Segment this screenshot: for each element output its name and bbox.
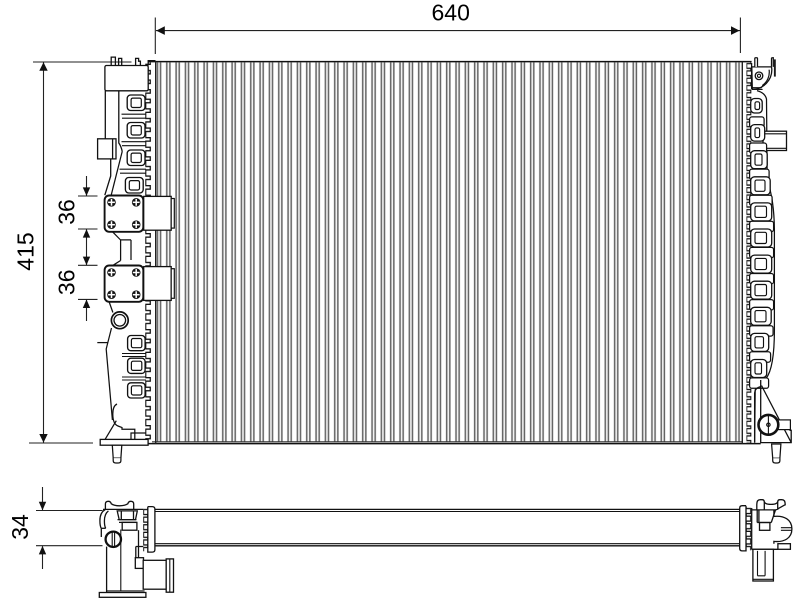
svg-text:415: 415 xyxy=(13,232,39,270)
svg-text:36: 36 xyxy=(53,270,79,296)
svg-text:34: 34 xyxy=(7,514,33,540)
svg-text:36: 36 xyxy=(53,199,79,225)
svg-text:640: 640 xyxy=(432,0,470,26)
